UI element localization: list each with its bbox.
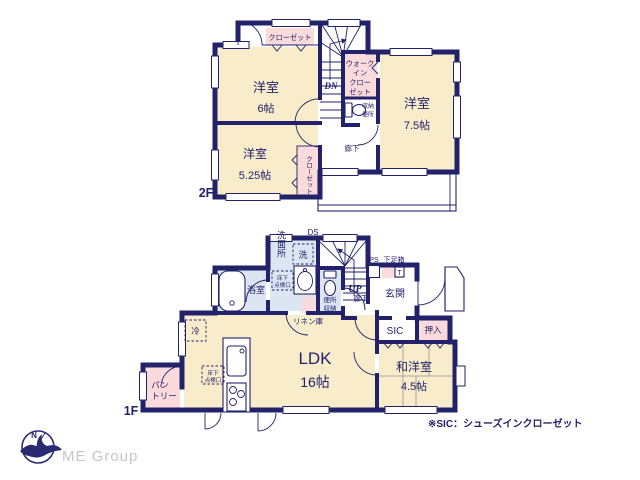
label-2f-room-sw-size: 5.25帖	[239, 169, 271, 182]
label-washitsu-size: 4.5帖	[401, 380, 427, 393]
footer: ※SIC：シューズインクローゼット N ME Group	[20, 417, 583, 465]
label-2f-hallway: 廊下	[345, 143, 360, 153]
label-pantry-2: トリー	[151, 391, 177, 401]
label-ldk: LDK	[298, 349, 332, 368]
label-1f-toilet: 便所	[324, 295, 338, 304]
label-washitsu: 和洋室	[396, 359, 432, 374]
entrance-porch	[445, 267, 464, 311]
label-fridge: 冷	[191, 326, 200, 336]
washbasin-icon	[294, 266, 316, 294]
floorplan-svg: クローゼット 洋室 6帖 洋室 5.25帖 洋室 7.5帖 ウォーク イン クロ…	[0, 0, 640, 480]
label-hatch-bath-1: 床下	[277, 274, 289, 282]
label-hatch-ldk-2: 点検口	[205, 376, 222, 384]
label-ps: PS	[369, 257, 379, 264]
room-1f-linen	[302, 297, 318, 313]
label-wic-4: ゼット	[349, 88, 371, 97]
toilet-1f-icon	[324, 271, 336, 296]
floorplan-page: クローゼット 洋室 6帖 洋室 5.25帖 洋室 7.5帖 ウォーク イン クロ…	[0, 0, 640, 480]
label-ds: DS	[307, 228, 318, 237]
washitsu-door-leaf	[456, 366, 465, 386]
label-linen: リネン庫	[293, 316, 323, 326]
label-2f-room-nw-size: 6帖	[257, 102, 274, 115]
label-1f-toilet-storage: 収納	[324, 304, 337, 313]
room-2f-east-7-5jo	[380, 54, 455, 170]
label-bath: 浴室	[247, 284, 265, 295]
label-wic-3: クロー	[349, 78, 371, 87]
label-entrance: 玄関	[385, 287, 405, 300]
label-hatch-ldk-1: 床下	[207, 369, 219, 377]
label-1f-hallway: 廊下	[354, 293, 369, 303]
label-wic-1: ウォーク	[346, 59, 375, 68]
label-2f-room-sw: 洋室	[243, 146, 267, 161]
label-shoebox-t: T	[397, 270, 402, 277]
label-2f-storage: 収納	[362, 102, 374, 110]
kitchen-icon	[223, 338, 250, 412]
brand-text: ME Group	[62, 448, 138, 465]
label-shoebox: 下足箱	[384, 255, 405, 264]
label-floor-2f: 2F	[199, 186, 214, 200]
sic-note: ※SIC：シューズインクローゼット	[428, 417, 583, 430]
label-2f-room-e-size: 7.5帖	[404, 119, 430, 132]
balcony	[318, 174, 456, 211]
label-hatch-bath-2: 点検口	[274, 281, 291, 289]
label-wic-2: イン	[353, 69, 367, 78]
compass-n: N	[31, 431, 37, 440]
pipe-space-box	[369, 266, 380, 278]
label-stairs-dn: DN	[324, 81, 338, 91]
label-2f-toilet: 便所	[362, 111, 374, 119]
label-ldk-size: 16帖	[300, 374, 330, 390]
label-floor-1f: 1F	[124, 404, 139, 418]
label-sic: SIC	[387, 326, 404, 337]
label-oshiire: 押入	[424, 325, 442, 335]
label-laundry: 洗	[298, 249, 307, 260]
room-1f-ldk	[184, 315, 375, 408]
bird-icon	[20, 434, 62, 458]
label-pantry-1: パン	[151, 380, 168, 390]
label-2f-room-nw: 洋室	[253, 80, 279, 95]
label-closet-north: クローゼット	[268, 33, 311, 42]
brand-logo: N	[20, 431, 62, 463]
label-2f-room-e: 洋室	[404, 96, 430, 111]
label-washroom: 洗面所	[276, 229, 286, 258]
